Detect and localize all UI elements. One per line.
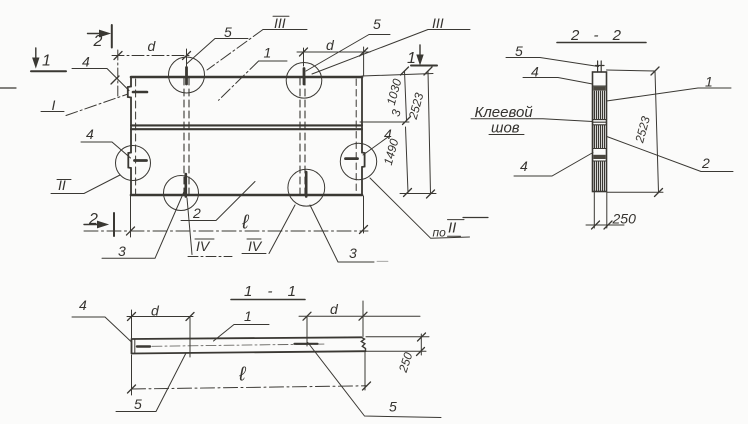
svg-text:5: 5 [134, 396, 142, 412]
svg-text:1: 1 [42, 53, 51, 70]
svg-text:3: 3 [118, 243, 126, 259]
svg-text:IV: IV [196, 238, 211, 254]
svg-text:2: 2 [88, 211, 98, 228]
svg-text:d: d [151, 303, 160, 319]
svg-text:II: II [58, 177, 66, 193]
svg-text:4: 4 [79, 297, 87, 313]
svg-text:4: 4 [520, 158, 528, 174]
svg-text:шов: шов [491, 120, 520, 137]
svg-text:Клеевой: Клеевой [475, 104, 534, 121]
svg-text:III: III [432, 15, 444, 31]
svg-text:5: 5 [389, 399, 397, 415]
svg-text:4: 4 [86, 126, 94, 142]
svg-text:4: 4 [82, 54, 90, 70]
svg-text:250: 250 [612, 211, 637, 227]
svg-text:5: 5 [224, 24, 232, 40]
svg-text:II: II [448, 220, 456, 237]
svg-text:1: 1 [244, 308, 252, 324]
svg-text:1 - 1: 1 - 1 [244, 283, 302, 300]
svg-text:IV: IV [248, 238, 263, 254]
svg-text:5: 5 [515, 43, 523, 59]
svg-text:I: I [52, 97, 56, 113]
svg-text:1: 1 [705, 74, 713, 90]
svg-text:4: 4 [531, 64, 539, 80]
svg-text:d: d [330, 301, 339, 317]
svg-text:1: 1 [264, 45, 272, 61]
svg-text:d: d [148, 38, 157, 54]
svg-text:III: III [274, 15, 286, 31]
svg-text:2: 2 [701, 155, 710, 171]
svg-text:2: 2 [93, 33, 103, 50]
svg-text:по: по [433, 225, 447, 239]
svg-text:2: 2 [192, 205, 201, 221]
svg-text:d: d [326, 37, 335, 53]
svg-text:3: 3 [349, 245, 357, 261]
svg-text:2 - 2: 2 - 2 [570, 27, 626, 44]
svg-text:1: 1 [407, 50, 416, 67]
svg-text:5: 5 [373, 16, 381, 32]
